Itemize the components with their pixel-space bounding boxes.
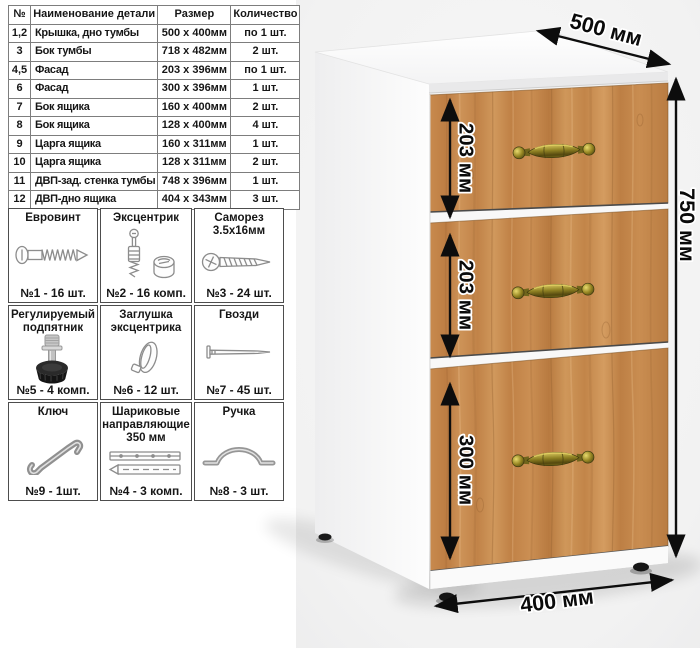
hardware-cell-hex-key: Ключ №9 - 1шт. [8, 402, 98, 501]
part-name: Бок тумбы [31, 43, 158, 62]
part-name: Бок ящика [31, 117, 158, 136]
hardware-title: Саморез 3.5х16мм [196, 212, 282, 238]
header-qty: Количество [231, 6, 300, 25]
part-row: 1,2 Крышка, дно тумбы 500 х 400мм по 1 ш… [9, 24, 300, 43]
header-size: Размер [158, 6, 231, 25]
part-name: Крышка, дно тумбы [31, 24, 158, 43]
euro-screw-icon [13, 225, 93, 286]
part-size: 300 х 396мм [158, 80, 231, 99]
part-size: 500 х 400мм [158, 24, 231, 43]
parts-table-header-row: № Наименование детали Размер Количество [9, 6, 300, 25]
hardware-grid: Евровинт №1 - 16 шт. Эксцентрик [8, 208, 286, 501]
hardware-cell-cam-cap: Заглушка эксцентрика №6 - 12 шт. [100, 305, 192, 400]
part-name: Царга ящика [31, 154, 158, 173]
part-row: 12 ДВП-дно ящика 404 х 343мм 3 шт. [9, 191, 300, 210]
part-size: 160 х 311мм [158, 135, 231, 154]
dimension-drawer-top-label: 203 мм [455, 123, 478, 193]
cam-lock-icon [110, 225, 182, 286]
part-qty: 1 шт. [231, 135, 300, 154]
hardware-count: №4 - 3 комп. [109, 484, 182, 498]
part-name: ДВП-зад. стенка тумбы [31, 172, 158, 191]
hardware-cell-adjustable-foot: Регулируемый подпятник №5 - 4 комп. [8, 305, 98, 400]
parts-table: № Наименование детали Размер Количество … [8, 5, 300, 210]
part-row: 6 Фасад 300 х 396мм 1 шт. [9, 80, 300, 99]
part-num: 8 [9, 117, 31, 136]
part-num: 9 [9, 135, 31, 154]
part-qty: 2 шт. [231, 43, 300, 62]
dimension-drawer-middle-label: 203 мм [455, 260, 478, 330]
part-qty: по 1 шт. [231, 24, 300, 43]
header-num: № [9, 6, 31, 25]
assembly-instruction-page: { "parts_table": { "headers": {"num":"№"… [0, 0, 700, 648]
part-num: 6 [9, 80, 31, 99]
hardware-count: №1 - 16 шт. [20, 286, 86, 300]
hardware-title: Гвозди [219, 309, 259, 322]
part-num: 11 [9, 172, 31, 191]
hardware-count: №6 - 12 шт. [113, 383, 179, 397]
part-size: 404 х 343мм [158, 191, 231, 210]
part-qty: 2 шт. [231, 154, 300, 173]
part-name: Фасад [31, 80, 158, 99]
hardware-cell-handle: Ручка №8 - 3 шт. [194, 402, 284, 501]
hardware-count: №3 - 24 шт. [206, 286, 272, 300]
hardware-cell-nail: Гвозди №7 - 45 шт. [194, 305, 284, 400]
part-qty: 3 шт. [231, 191, 300, 210]
hardware-title: Евровинт [25, 212, 81, 225]
ball-bearing-slides-icon [107, 445, 185, 484]
hardware-cell-ball-bearing-slides: Шариковые направляющие 350 мм №4 - 3 ком… [100, 402, 192, 501]
hardware-count: №2 - 16 комп. [106, 286, 186, 300]
part-name: Бок ящика [31, 98, 158, 117]
hardware-title: Эксцентрик [113, 212, 179, 225]
dimension-height-label: 750 мм [675, 188, 699, 262]
part-num: 1,2 [9, 24, 31, 43]
cam-cap-icon [120, 335, 172, 383]
part-qty: по 1 шт. [231, 61, 300, 80]
part-num: 3 [9, 43, 31, 62]
part-size: 203 х 396мм [158, 61, 231, 80]
part-size: 748 х 396мм [158, 172, 231, 191]
dimension-drawer-bottom-label: 300 мм [455, 435, 478, 505]
hardware-title: Ключ [38, 406, 68, 419]
part-num: 10 [9, 154, 31, 173]
hardware-title: Шариковые направляющие 350 мм [102, 406, 190, 445]
part-size: 718 х 482мм [158, 43, 231, 62]
part-num: 4,5 [9, 61, 31, 80]
part-qty: 1 шт. [231, 172, 300, 191]
part-name: Фасад [31, 61, 158, 80]
nail-icon [202, 322, 276, 383]
part-qty: 2 шт. [231, 98, 300, 117]
part-row: 8 Бок ящика 128 х 400мм 4 шт. [9, 117, 300, 136]
foot-back-left [319, 534, 332, 541]
part-qty: 1 шт. [231, 80, 300, 99]
adjustable-foot-icon [30, 335, 76, 383]
part-row: 4,5 Фасад 203 х 396мм по 1 шт. [9, 61, 300, 80]
hardware-count: №9 - 1шт. [25, 484, 81, 498]
part-row: 11 ДВП-зад. стенка тумбы 748 х 396мм 1 ш… [9, 172, 300, 191]
part-name: ДВП-дно ящика [31, 191, 158, 210]
part-num: 7 [9, 98, 31, 117]
part-num: 12 [9, 191, 31, 210]
part-size: 128 х 400мм [158, 117, 231, 136]
cabinet-body [315, 30, 668, 605]
hardware-cell-cam-lock: Эксцентрик [100, 208, 192, 303]
hardware-count: №8 - 3 шт. [210, 484, 269, 498]
hardware-count: №7 - 45 шт. [206, 383, 272, 397]
hardware-cell-self-tapping-screw: Саморез 3.5х16мм №3 - 24 шт. [194, 208, 284, 303]
part-size: 128 х 311мм [158, 154, 231, 173]
cabinet-side-panel [315, 52, 429, 589]
handle-icon [200, 419, 278, 484]
foot-front-right [633, 563, 649, 572]
part-name: Царга ящика [31, 135, 158, 154]
hardware-count: №5 - 4 комп. [16, 383, 89, 397]
hardware-cell-euro-screw: Евровинт №1 - 16 шт. [8, 208, 98, 303]
header-name: Наименование детали [31, 6, 158, 25]
part-size: 160 х 400мм [158, 98, 231, 117]
part-qty: 4 шт. [231, 117, 300, 136]
part-row: 3 Бок тумбы 718 х 482мм 2 шт. [9, 43, 300, 62]
hardware-title: Ручка [223, 406, 256, 419]
foot-front-left [439, 593, 455, 602]
part-row: 10 Царга ящика 128 х 311мм 2 шт. [9, 154, 300, 173]
hardware-title: Заглушка эксцентрика [102, 309, 190, 335]
hex-key-icon [22, 419, 84, 484]
part-row: 9 Царга ящика 160 х 311мм 1 шт. [9, 135, 300, 154]
self-tapping-screw-icon [200, 238, 278, 286]
part-row: 7 Бок ящика 160 х 400мм 2 шт. [9, 98, 300, 117]
hardware-title: Регулируемый подпятник [10, 309, 96, 335]
